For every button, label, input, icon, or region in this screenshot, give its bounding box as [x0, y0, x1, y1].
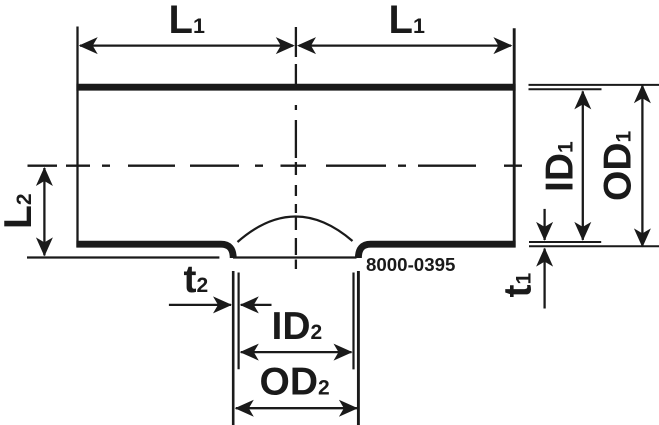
svg-text:8000-0395: 8000-0395 [366, 254, 455, 275]
